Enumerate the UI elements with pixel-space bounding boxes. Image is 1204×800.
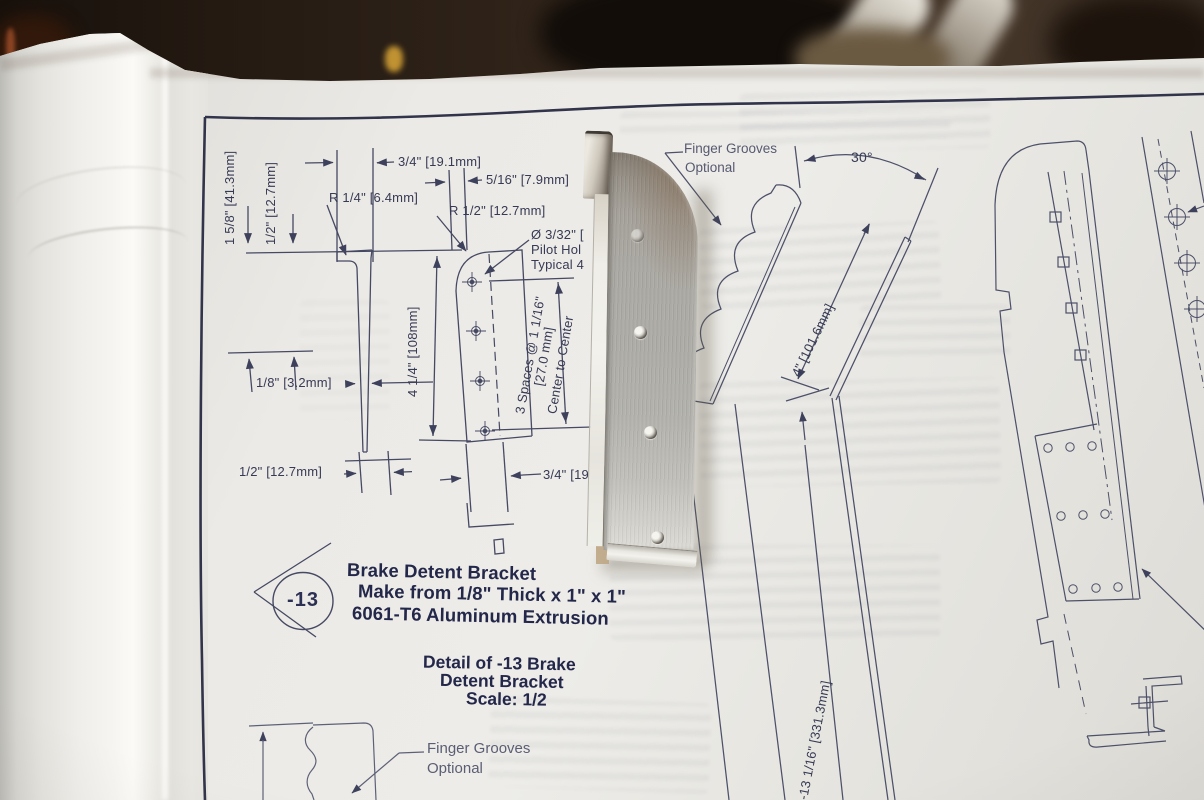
dim-radius-2: R 1/2" [12.7mm] [449,203,545,218]
dim-pilot-line3: Typical 4 [531,257,584,272]
bracket-pilot-hole-2 [634,326,647,339]
dim-width-flange: 5/16" [7.9mm] [486,172,569,187]
finger-grooves-note-bottom-line2: Optional [427,760,483,777]
dim-thickness: 1/8" [3.2mm] [256,375,332,390]
dim-radius-1: R 1/4" [6.4mm] [329,190,418,205]
dim-height-1: 1 5/8" [41.3mm] [222,151,237,245]
finger-groove-detail-lines [249,723,424,800]
dim-height-2: 1/2" [12.7mm] [263,162,278,245]
bracket-pilot-hole-4 [651,531,664,544]
part-callout: -13 [281,589,325,612]
dim-width-bot1: 1/2" [12.7mm] [239,464,322,479]
bracket-brushed-face [603,152,699,551]
detail-caption-line3: Scale: 1/2 [466,688,547,710]
far-right-lines [995,131,1204,747]
dim-angle: 30° [851,149,873,165]
finger-grooves-note-right-line1: Finger Grooves [684,141,777,156]
bracket-pilot-hole-1 [631,229,644,242]
finger-grooves-note-bottom-line1: Finger Grooves [427,740,530,757]
dim-pilot-line1: Ø 3/32" [ [531,227,584,242]
dim-width-top: 3/4" [19.1mm] [398,154,481,169]
dim-length: 4 1/4" [108mm] [405,306,420,397]
bracket-pilot-hole-3 [644,426,657,439]
finger-grooves-note-right-line2: Optional [685,160,735,175]
photo-of-blueprint: 1 5/8" [41.3mm] 1/2" [12.7mm] 3/4" [19.1… [0,0,1204,800]
dim-pilot-line2: Pilot Hol [531,242,581,257]
